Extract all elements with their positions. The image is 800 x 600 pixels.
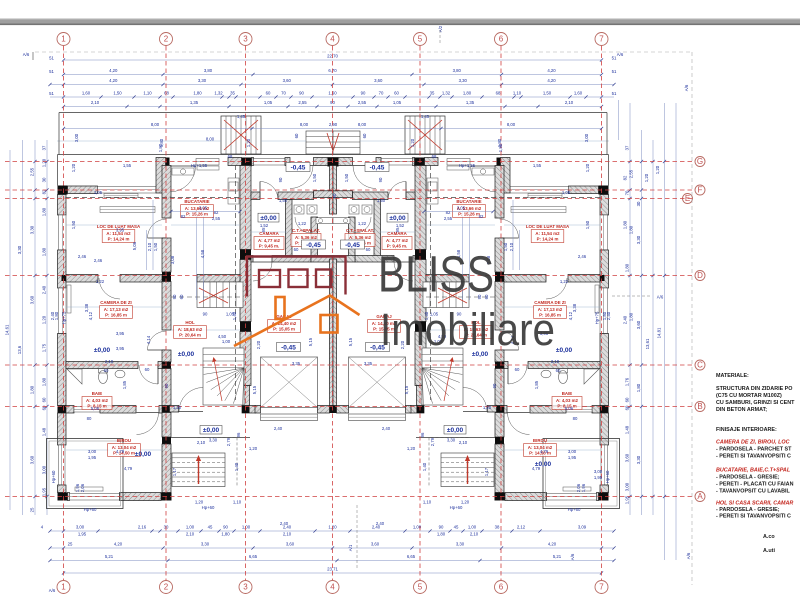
svg-text:5,21: 5,21	[553, 554, 562, 559]
svg-text:3: 3	[243, 35, 248, 44]
svg-text:2,40: 2,40	[280, 521, 289, 526]
svg-text:1,20: 1,20	[407, 446, 416, 451]
svg-text:60: 60	[266, 91, 271, 96]
svg-text:4,58: 4,58	[200, 249, 205, 258]
svg-text:1,80: 1,80	[602, 311, 607, 320]
svg-text:BIROU: BIROU	[117, 438, 131, 443]
svg-text:1,55: 1,55	[533, 163, 542, 168]
svg-text:MATERIALE:: MATERIALE:	[716, 373, 749, 379]
svg-text:3,00: 3,00	[625, 482, 630, 491]
svg-text:51: 51	[49, 56, 54, 61]
svg-text:60: 60	[145, 367, 150, 372]
svg-text:Hp+60: Hp+60	[202, 505, 215, 510]
svg-text:3,30: 3,30	[201, 542, 210, 547]
svg-text:1,00: 1,00	[222, 339, 231, 344]
svg-text:1,05: 1,05	[264, 100, 273, 105]
svg-text:1,52: 1,52	[396, 223, 405, 228]
svg-text:STRUCTURA DIN ZIDARIE PO: STRUCTURA DIN ZIDARIE PO	[716, 386, 792, 392]
svg-text:3,95: 3,95	[116, 228, 125, 233]
svg-text:Hp+60: Hp+60	[450, 505, 463, 510]
svg-text:- TAVANVOPSIT CU LAVABIL: - TAVANVOPSIT CU LAVABIL	[716, 489, 790, 495]
svg-text:3: 3	[243, 583, 248, 592]
svg-text:CAMERA DE ZI, BIROU, LOC: CAMERA DE ZI, BIROU, LOC	[716, 440, 790, 446]
svg-text:82: 82	[479, 214, 484, 219]
svg-text:A: 5,36 m2: A: 5,36 m2	[349, 235, 372, 240]
svg-text:3,30: 3,30	[636, 455, 641, 464]
svg-text:1,35: 1,35	[466, 100, 475, 105]
svg-text:1,22: 1,22	[560, 279, 569, 284]
svg-text:3,60: 3,60	[371, 542, 380, 547]
svg-text:5,15: 5,15	[404, 385, 409, 394]
svg-text:±0,00: ±0,00	[556, 347, 573, 354]
svg-text:90: 90	[378, 177, 383, 182]
svg-text:5: 5	[418, 35, 423, 44]
svg-text:3,05: 3,05	[199, 206, 208, 211]
svg-text:1,96: 1,96	[581, 483, 586, 492]
svg-text:1,20: 1,20	[461, 500, 470, 505]
svg-text:3,35: 3,35	[292, 361, 301, 366]
svg-text:1,76: 1,76	[625, 377, 630, 386]
svg-text:3,00: 3,00	[74, 133, 79, 142]
svg-text:3,30: 3,30	[636, 235, 641, 244]
svg-text:1,00: 1,00	[468, 525, 477, 530]
svg-text:60: 60	[294, 133, 299, 138]
svg-text:1,22: 1,22	[298, 221, 307, 226]
svg-text:3,35: 3,35	[364, 361, 373, 366]
svg-text:1,50: 1,50	[279, 198, 288, 203]
svg-text:2,55: 2,55	[212, 216, 221, 221]
svg-text:90: 90	[223, 525, 228, 530]
svg-text:CU SAMBURI, GRINZI SI CENT: CU SAMBURI, GRINZI SI CENT	[716, 400, 795, 406]
svg-text:1,80: 1,80	[625, 263, 630, 272]
svg-text:Hp+75: Hp+75	[62, 311, 67, 324]
svg-text:90: 90	[278, 177, 283, 182]
svg-text:30: 30	[636, 201, 641, 206]
svg-text:A: 5,36 m2: A: 5,36 m2	[295, 235, 318, 240]
svg-text:1,35: 1,35	[190, 100, 199, 105]
svg-text:5,21: 5,21	[105, 554, 114, 559]
svg-text:1,80: 1,80	[42, 377, 47, 386]
svg-text:- PARDOSELA - PARCHET ST: - PARDOSELA - PARCHET ST	[716, 447, 792, 453]
svg-text:60: 60	[394, 91, 399, 96]
svg-text:±0,00: ±0,00	[447, 427, 464, 434]
svg-text:5,06: 5,06	[565, 406, 574, 411]
svg-text:1,60: 1,60	[82, 91, 91, 96]
svg-text:1,80: 1,80	[437, 532, 446, 537]
svg-text:1,50: 1,50	[344, 173, 349, 182]
svg-text:2,12: 2,12	[517, 525, 526, 530]
svg-text:3,30: 3,30	[447, 438, 456, 443]
svg-text:1,50: 1,50	[503, 242, 508, 251]
svg-text:1,95: 1,95	[78, 532, 87, 537]
svg-text:8,00: 8,00	[300, 122, 309, 127]
svg-text:1,80: 1,80	[497, 138, 502, 147]
svg-text:60: 60	[362, 133, 367, 138]
svg-text:A/6: A/6	[657, 295, 664, 300]
svg-text:BUCATARIE: BUCATARIE	[456, 199, 481, 204]
svg-text:3,60: 3,60	[283, 78, 292, 83]
svg-text:60: 60	[366, 247, 371, 252]
svg-text:-0,45: -0,45	[345, 242, 360, 249]
svg-text:C.T.+SPALAT.: C.T.+SPALAT.	[292, 228, 320, 233]
svg-text:90: 90	[332, 193, 337, 198]
svg-text:1,50: 1,50	[113, 91, 122, 96]
svg-text:3,00: 3,00	[568, 449, 577, 454]
svg-text:A/6: A/6	[49, 588, 56, 593]
svg-text:2,16: 2,16	[138, 525, 147, 530]
svg-text:2,40: 2,40	[623, 315, 628, 324]
svg-text:35: 35	[430, 91, 435, 96]
svg-text:2,55: 2,55	[629, 169, 634, 178]
svg-text:Hp+75: Hp+75	[595, 311, 600, 324]
svg-text:DIN BETON ARMAT;: DIN BETON ARMAT;	[716, 407, 767, 413]
svg-text:2,55: 2,55	[358, 100, 367, 105]
svg-text:HOL: HOL	[185, 320, 195, 325]
svg-text:±0,00: ±0,00	[203, 427, 220, 434]
svg-text:Imobiliare: Imobiliare	[380, 304, 555, 355]
svg-text:1,95: 1,95	[42, 487, 47, 496]
svg-text:80: 80	[87, 416, 92, 421]
svg-text:A: 4,03 m2: A: 4,03 m2	[556, 398, 579, 403]
svg-text:1,20: 1,20	[173, 405, 182, 410]
svg-text:60: 60	[294, 247, 299, 252]
svg-text:1,20: 1,20	[655, 165, 660, 174]
svg-text:BAIE: BAIE	[562, 391, 573, 396]
svg-text:1,55: 1,55	[123, 163, 132, 168]
svg-text:2: 2	[164, 35, 169, 44]
svg-text:1,80: 1,80	[159, 138, 164, 147]
svg-text:90: 90	[439, 525, 444, 530]
svg-text:1,10: 1,10	[513, 91, 522, 96]
svg-text:1,22: 1,22	[96, 279, 105, 284]
svg-text:2,55: 2,55	[444, 216, 453, 221]
svg-text:BIROU: BIROU	[533, 438, 547, 443]
svg-text:82: 82	[181, 214, 186, 219]
svg-text:1,80: 1,80	[30, 385, 35, 394]
svg-text:82: 82	[446, 210, 451, 215]
svg-text:Hp+60: Hp+60	[605, 470, 610, 483]
svg-text:P: 15,26 m: P: 15,26 m	[186, 212, 208, 217]
svg-text:60: 60	[42, 397, 47, 402]
svg-text:1,80: 1,80	[221, 532, 230, 537]
svg-text:4,79: 4,79	[124, 466, 133, 471]
svg-text:1,52: 1,52	[260, 223, 269, 228]
svg-text:2,10: 2,10	[91, 100, 100, 105]
svg-text:5,15: 5,15	[308, 337, 313, 346]
svg-text:1,20: 1,20	[249, 446, 258, 451]
svg-text:P: 14,24 m: P: 14,24 m	[537, 237, 559, 242]
svg-text:2,40: 2,40	[376, 521, 385, 526]
svg-text:A: 11,54 m2: A: 11,54 m2	[535, 231, 560, 236]
svg-text:4: 4	[330, 35, 335, 44]
svg-text:60: 60	[179, 294, 184, 299]
svg-text:1,50: 1,50	[377, 198, 386, 203]
svg-text:2,20: 2,20	[256, 340, 261, 349]
svg-text:1,80: 1,80	[629, 225, 634, 234]
svg-text:1,50: 1,50	[71, 220, 76, 229]
svg-text:Hp+1,55: Hp+1,55	[459, 163, 476, 168]
svg-text:37: 37	[42, 145, 47, 150]
svg-text:2,10: 2,10	[459, 440, 468, 445]
svg-text:4,20: 4,20	[109, 78, 118, 83]
svg-text:1,60: 1,60	[574, 91, 583, 96]
svg-text:G: G	[697, 157, 703, 166]
svg-text:A/1: A/1	[348, 544, 353, 551]
svg-text:FINISAJE INTERIOARE:: FINISAJE INTERIOARE:	[716, 427, 777, 433]
svg-text:A: 4,77 m2: A: 4,77 m2	[258, 238, 281, 243]
svg-text:2,10: 2,10	[186, 532, 195, 537]
svg-text:4,20: 4,20	[547, 78, 556, 83]
svg-text:3,08: 3,08	[170, 255, 175, 264]
svg-text:8,00: 8,00	[507, 122, 516, 127]
svg-text:68: 68	[164, 91, 169, 96]
svg-text:3,05: 3,05	[457, 206, 466, 211]
svg-text:2,79: 2,79	[430, 437, 435, 446]
svg-text:8,00: 8,00	[358, 122, 367, 127]
svg-text:90: 90	[492, 383, 497, 388]
svg-text:1,20: 1,20	[410, 138, 415, 147]
svg-text:1,50: 1,50	[585, 220, 590, 229]
svg-text:1,05: 1,05	[393, 100, 402, 105]
svg-text:3,60: 3,60	[30, 455, 35, 464]
svg-text:8,00: 8,00	[206, 137, 215, 142]
svg-text:A/6: A/6	[617, 52, 624, 57]
svg-text:1,80: 1,80	[42, 207, 47, 216]
svg-text:- PARDOSELA - GRESIE;: - PARDOSELA - GRESIE;	[716, 475, 780, 481]
svg-text:C: C	[697, 360, 703, 369]
svg-text:1,20: 1,20	[246, 138, 251, 147]
svg-text:A/6: A/6	[23, 52, 30, 57]
svg-text:5,15: 5,15	[252, 385, 257, 394]
svg-text:A: 4,03 m2: A: 4,03 m2	[86, 398, 109, 403]
svg-text:96: 96	[420, 432, 425, 437]
svg-text:60: 60	[515, 367, 520, 372]
svg-text:60: 60	[625, 397, 630, 402]
svg-text:P: 15,05 m: P: 15,05 m	[273, 327, 295, 332]
svg-text:2,10: 2,10	[147, 242, 152, 251]
svg-text:BLISS: BLISS	[378, 246, 494, 303]
svg-text:1,05: 1,05	[94, 190, 103, 195]
svg-text:BUCATARIE: BUCATARIE	[184, 199, 209, 204]
svg-text:1: 1	[61, 583, 66, 592]
svg-text:1,85: 1,85	[534, 380, 539, 389]
svg-text:1,32: 1,32	[442, 91, 451, 96]
svg-text:80: 80	[573, 416, 578, 421]
svg-text:90: 90	[361, 91, 366, 96]
svg-text:1,10: 1,10	[423, 500, 432, 505]
svg-text:90: 90	[164, 383, 169, 388]
svg-text:68: 68	[496, 91, 501, 96]
svg-text:3,60: 3,60	[636, 320, 641, 329]
svg-text:3,80: 3,80	[204, 68, 213, 73]
svg-text:1,40: 1,40	[234, 462, 239, 471]
svg-text:2,46: 2,46	[578, 254, 587, 259]
svg-text:68: 68	[432, 154, 437, 159]
svg-text:90: 90	[172, 294, 177, 299]
svg-text:3,00: 3,00	[594, 469, 603, 474]
svg-text:51: 51	[612, 69, 617, 74]
svg-text:37: 37	[625, 145, 630, 150]
svg-text:- PERETI - PLACATI CU FAIAN: - PERETI - PLACATI CU FAIAN	[716, 482, 794, 488]
svg-text:1,80: 1,80	[54, 311, 59, 320]
svg-text:1,20: 1,20	[42, 315, 47, 324]
svg-text:3,95: 3,95	[116, 331, 125, 336]
svg-text:3,95: 3,95	[116, 346, 125, 351]
svg-text:6: 6	[499, 35, 504, 44]
svg-text:14,81: 14,81	[657, 327, 662, 338]
svg-text:2,55: 2,55	[298, 100, 307, 105]
svg-text:A/2: A/2	[438, 25, 443, 32]
svg-text:1,48: 1,48	[625, 425, 630, 434]
svg-text:1,45: 1,45	[237, 114, 246, 119]
svg-text:6,65: 6,65	[249, 554, 258, 559]
svg-text:2,10: 2,10	[551, 359, 560, 364]
svg-text:82: 82	[214, 210, 219, 215]
svg-text:1,22: 1,22	[358, 221, 367, 226]
svg-text:1,50: 1,50	[153, 242, 158, 251]
svg-text:P: 15,26 m: P: 15,26 m	[458, 212, 480, 217]
svg-text:1,10: 1,10	[143, 91, 152, 96]
svg-text:-0,45: -0,45	[306, 242, 321, 249]
svg-text:Hp+60: Hp+60	[84, 507, 97, 512]
svg-text:1,80: 1,80	[636, 383, 641, 392]
svg-text:4,79: 4,79	[540, 449, 549, 454]
svg-text:2,10: 2,10	[565, 100, 574, 105]
svg-text:Hp+1,55: Hp+1,55	[191, 163, 208, 168]
svg-text:HOL SI CASA SCARII, CAMAR: HOL SI CASA SCARII, CAMAR	[716, 501, 793, 507]
svg-text:1,17: 1,17	[484, 467, 489, 476]
svg-text:1,20: 1,20	[585, 163, 590, 172]
svg-text:-0,45: -0,45	[291, 165, 306, 172]
svg-text:A: A	[697, 492, 703, 501]
svg-text:1,50: 1,50	[543, 91, 552, 96]
svg-text:1,85: 1,85	[122, 380, 127, 389]
svg-text:C.T.+SPALAT.: C.T.+SPALAT.	[346, 228, 374, 233]
svg-text:5,15: 5,15	[348, 337, 353, 346]
svg-text:30: 30	[42, 177, 47, 182]
svg-text:- PERETI SI TAVANVOPSITI C: - PERETI SI TAVANVOPSITI C	[716, 514, 791, 520]
svg-text:2,10: 2,10	[470, 532, 479, 537]
svg-text:1,00: 1,00	[186, 525, 195, 530]
svg-text:-0,45: -0,45	[281, 345, 296, 352]
svg-text:5: 5	[418, 583, 423, 592]
svg-text:- PARDOSELA - GRESIE;: - PARDOSELA - GRESIE;	[716, 507, 780, 513]
svg-text:(C75 CU MORTAR M100Z): (C75 CU MORTAR M100Z)	[716, 393, 782, 399]
svg-text:14,61: 14,61	[5, 324, 10, 335]
svg-text:A: 17,13 m2: A: 17,13 m2	[104, 307, 129, 312]
svg-text:3,00: 3,00	[76, 525, 85, 530]
svg-text:1,17: 1,17	[172, 467, 177, 476]
svg-text:2,40: 2,40	[382, 426, 391, 431]
svg-text:A/6: A/6	[570, 553, 575, 560]
svg-text:1,20: 1,20	[71, 163, 76, 172]
svg-text:3,30: 3,30	[17, 245, 22, 254]
svg-text:2,06: 2,06	[80, 483, 85, 492]
svg-text:2,46: 2,46	[78, 254, 87, 259]
svg-text:D: D	[697, 271, 703, 280]
svg-text:A.uti: A.uti	[763, 548, 775, 554]
svg-text:70: 70	[379, 91, 384, 96]
svg-text:BAIE: BAIE	[92, 391, 103, 396]
svg-text:82: 82	[623, 175, 628, 180]
svg-text:1,80: 1,80	[42, 247, 47, 256]
svg-text:68: 68	[228, 154, 233, 159]
svg-text:1,80: 1,80	[629, 312, 634, 321]
svg-text:3,30: 3,30	[209, 438, 218, 443]
svg-text:51: 51	[49, 69, 54, 74]
svg-text:3,60: 3,60	[625, 453, 630, 462]
svg-text:2,40: 2,40	[274, 426, 283, 431]
svg-text:3,09: 3,09	[578, 525, 587, 530]
svg-text:1,95: 1,95	[88, 455, 97, 460]
svg-text:1,20: 1,20	[483, 405, 492, 410]
svg-text:2,40: 2,40	[42, 285, 47, 294]
svg-text:51: 51	[612, 91, 617, 96]
svg-text:3,00: 3,00	[88, 449, 97, 454]
svg-text:P: 20,64 m: P: 20,64 m	[179, 333, 201, 338]
svg-text:4,20: 4,20	[109, 68, 118, 73]
svg-text:13,6: 13,6	[17, 345, 22, 354]
svg-text:4,79: 4,79	[116, 449, 125, 454]
svg-text:BUCATARIE, BAIE,C.T+SPAL: BUCATARIE, BAIE,C.T+SPAL	[716, 468, 790, 474]
svg-text:3,00: 3,00	[584, 133, 589, 142]
svg-text:2,10: 2,10	[283, 532, 292, 537]
svg-text:Hp+60: Hp+60	[568, 507, 581, 512]
svg-text:3,30: 3,30	[459, 78, 468, 83]
svg-text:45: 45	[208, 525, 213, 530]
svg-text:96: 96	[236, 432, 241, 437]
svg-text:P: 16,85 m: P: 16,85 m	[105, 313, 127, 318]
svg-text:8,00: 8,00	[151, 122, 160, 127]
svg-text:±0,00: ±0,00	[260, 215, 277, 222]
svg-text:45: 45	[454, 525, 459, 530]
svg-text:1,50: 1,50	[312, 173, 317, 182]
svg-text:3,00: 3,00	[42, 465, 47, 474]
svg-text:4,20: 4,20	[548, 542, 557, 547]
svg-text:90: 90	[203, 312, 208, 317]
svg-text:A.co: A.co	[763, 534, 775, 540]
svg-text:38: 38	[495, 525, 500, 530]
svg-text:F: F	[698, 185, 703, 194]
svg-text:1,95: 1,95	[594, 475, 603, 480]
svg-text:A: 4,77 m2: A: 4,77 m2	[386, 238, 409, 243]
svg-text:1,00: 1,00	[413, 525, 422, 530]
svg-text:1,96: 1,96	[75, 483, 80, 492]
svg-text:2,10: 2,10	[509, 242, 514, 251]
svg-text:3,60: 3,60	[374, 78, 383, 83]
svg-text:51: 51	[49, 91, 54, 96]
svg-text:1,40: 1,40	[422, 462, 427, 471]
svg-text:±0,00: ±0,00	[178, 351, 195, 358]
svg-text:1,00: 1,00	[242, 525, 251, 530]
svg-text:1,80: 1,80	[193, 91, 202, 96]
svg-text:2,46: 2,46	[94, 258, 103, 263]
svg-text:4,14: 4,14	[146, 335, 151, 344]
svg-text:1,10: 1,10	[233, 500, 242, 505]
svg-text:2,10: 2,10	[105, 359, 114, 364]
svg-text:2,90: 2,90	[329, 122, 338, 127]
svg-text:1,20: 1,20	[644, 173, 649, 182]
svg-text:±0,00: ±0,00	[135, 451, 152, 458]
svg-text:3,38: 3,38	[572, 303, 577, 312]
svg-text:1,32: 1,32	[214, 91, 223, 96]
svg-text:90: 90	[299, 91, 304, 96]
svg-text:1,80: 1,80	[463, 91, 472, 96]
svg-text:CAMERA DE ZI: CAMERA DE ZI	[100, 300, 132, 305]
svg-text:Hp+60: Hp+60	[51, 470, 56, 483]
svg-text:1,75: 1,75	[42, 343, 47, 352]
svg-text:25: 25	[68, 542, 73, 547]
